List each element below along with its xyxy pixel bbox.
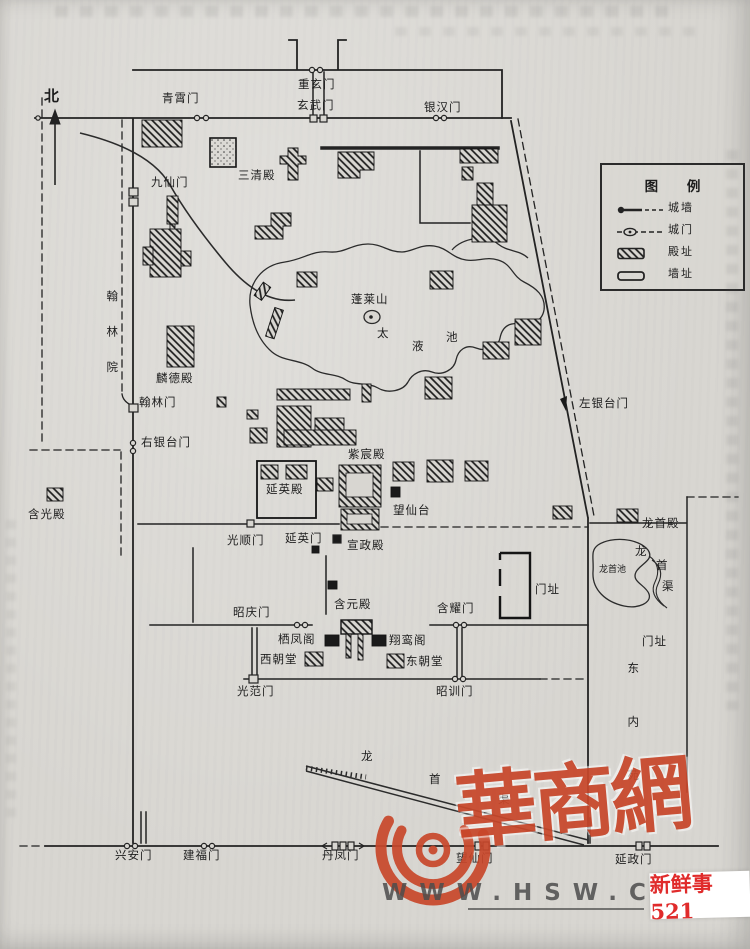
label-hanlin-gate: 翰林门 [139, 396, 177, 409]
label-hanyuan-hall: 含元殿 [334, 598, 372, 611]
jiuxian-gate-mark [129, 188, 138, 196]
watermark-url-text: WWW.HSW.CN [382, 880, 689, 906]
qifeng-pavilion [325, 635, 339, 646]
watermark-brand-text: 華商網 [452, 752, 692, 854]
label-jianfu-gate: 建福门 [183, 849, 221, 862]
ruin-e1 [515, 319, 541, 345]
ruin-n3 [462, 167, 473, 180]
zhaoqing-gate-mark [294, 622, 299, 627]
small-black-2 [328, 581, 337, 589]
qingxiao-gate-mark [203, 115, 208, 120]
label-longshou-pond: 龙首池 [599, 565, 626, 575]
ruin-open-square [210, 138, 236, 167]
youyintai-gate-mark [130, 440, 135, 445]
label-zuoyintai-gate: 左银台门 [579, 397, 629, 410]
legend-row-hall-site: 殿址 [602, 240, 743, 261]
label-danfeng-gate: 丹凤门 [322, 849, 360, 862]
ruin-e4 [553, 506, 572, 519]
watermark-underline [468, 908, 644, 910]
label-hanlin-academy: 翰林院 [105, 290, 118, 397]
guangshun-gate-mark [247, 520, 254, 527]
cluster-bar [277, 389, 350, 400]
gates-layer [36, 67, 650, 850]
ruin-m1 [297, 272, 317, 287]
jiuxian-gate-mark [129, 198, 138, 206]
label-xiangluan-pavilion: 翔鸾阁 [389, 634, 427, 647]
west-complex-main [150, 229, 181, 277]
xichaotang-footprint [305, 652, 323, 666]
zuoyintai-gate-mark [560, 396, 567, 411]
ruin-c2 [427, 460, 453, 482]
label-zichen-hall: 紫宸殿 [348, 448, 386, 461]
label-taiye-ye: 液 [412, 340, 425, 353]
zichen-courtyard [346, 473, 373, 497]
cluster-low [284, 430, 356, 445]
west-complex-wing2 [181, 251, 191, 266]
small-w2 [247, 410, 258, 419]
label-linde-hall: 麟德殿 [156, 372, 194, 385]
label-yinhan-gate: 银汉门 [424, 101, 462, 114]
hall-site-symbol [616, 245, 668, 257]
xuanwu-gate-mark [310, 115, 317, 122]
lake-south-bar [362, 384, 371, 402]
youyintai-gate-mark [130, 448, 135, 453]
chongxuan-gate-mark [309, 67, 314, 72]
label-guangshun-gate: 光顺门 [227, 534, 265, 547]
yinhan-gate-mark [433, 115, 438, 120]
label-xuanzheng-hall: 宣政殿 [347, 539, 385, 552]
legend-box: 图 例 城墙 城门 殿址 墙址 [600, 163, 745, 291]
yanying-tab [317, 478, 333, 491]
ruin-n1 [338, 152, 374, 178]
yanying-gate-mark [333, 535, 341, 543]
xiangluan-pavilion [372, 635, 386, 646]
legend-row-wall: 城墙 [602, 196, 743, 217]
xuanzheng-inner [347, 514, 372, 524]
sanqing-hall-footprint [280, 148, 306, 180]
zhaoxun-gate-mark [460, 676, 465, 681]
label-yanying-gate: 延英门 [285, 532, 323, 545]
ruin-c3 [465, 461, 488, 481]
chongxuan-gate-mark [317, 67, 322, 72]
lake-nw-bar [254, 282, 271, 300]
label-canal-long: 龙 [361, 750, 374, 763]
watermark-badge: 新鲜事521 [649, 871, 750, 920]
label-zhaoxun-gate: 昭训门 [436, 685, 474, 698]
label-penglai-hill: 蓬莱山 [351, 293, 389, 306]
ruin-mid-step [255, 213, 291, 239]
dongchaotang-footprint [387, 654, 404, 668]
hanguang-hall-footprint [47, 488, 63, 501]
label-longshou-canal-shou: 首 [656, 559, 669, 572]
corner-mark [36, 116, 40, 120]
lake-west-bridge [266, 307, 284, 338]
label-longshou-hall: 龙首殿 [642, 517, 680, 530]
ruin-n2 [460, 149, 498, 163]
label-jiuxian-gate: 九仙门 [151, 176, 189, 189]
scanned-page: 北 青霄门 重玄门 玄武门 银汉门 九仙门 三清殿 翰林院 麟德殿 翰林门 右银… [0, 0, 750, 949]
ruin-c1 [393, 462, 414, 481]
label-longshou-canal-qu: 渠 [662, 580, 675, 593]
label-longshou-canal-long: 龙 [635, 545, 648, 558]
legend-row-wall-site: 墙址 [602, 262, 743, 283]
city-wall-symbol [616, 201, 668, 213]
wangxiantai-platform [391, 487, 400, 497]
legend-title: 图 例 [602, 175, 743, 195]
ruin-nw-hall [142, 120, 182, 147]
legend-label: 城门 [668, 221, 694, 237]
hanyuan-hall-footprint [341, 620, 372, 634]
zhaoxun-gate-mark [452, 676, 457, 681]
penglai-island-dot [369, 315, 373, 319]
small-w1 [217, 397, 226, 407]
hanlin-gate-mark [129, 404, 138, 412]
label-west-court-hall: 西朝堂 [260, 653, 298, 666]
label-gate-site-east: 门址 [535, 583, 560, 596]
longshou-hall-footprint [617, 509, 638, 522]
city-gate-symbol [616, 223, 668, 235]
north-arrow [50, 110, 60, 185]
ruin-ne-upper [477, 183, 493, 205]
taiye-lake-outline [250, 244, 544, 391]
xuanwu-gate-mark [320, 115, 327, 122]
yanying-sq1 [261, 465, 278, 479]
wall-site-symbol [616, 267, 668, 279]
cluster-sq [250, 428, 267, 443]
label-chongxuan-gate: 重玄门 [298, 78, 336, 91]
ruin-ne-lower [472, 205, 507, 242]
label-wangxian-terrace: 望仙台 [393, 504, 431, 517]
label-qifeng-pavilion: 栖凤阁 [278, 633, 316, 646]
gate-site-outline [500, 553, 530, 618]
longweidao-left [346, 634, 351, 658]
longweidao-right [358, 634, 363, 660]
label-gate-site-south: 门址 [642, 635, 667, 648]
hanyao-gate-mark [461, 622, 466, 627]
label-taiye-chi: 池 [446, 331, 459, 344]
jiuxian-road [80, 133, 295, 300]
label-qingxiao-gate: 青霄门 [162, 92, 200, 105]
qingxiao-gate-mark [194, 115, 199, 120]
hanyao-gate-mark [453, 622, 458, 627]
ruin-e2 [483, 342, 509, 359]
label-hanguang-hall: 含光殿 [28, 508, 66, 521]
label-sanqing-hall: 三清殿 [238, 169, 276, 182]
zhaoqing-gate-mark [302, 622, 307, 627]
label-zhaoqing-gate: 昭庆门 [233, 606, 271, 619]
label-yanying-hall: 延英殿 [266, 483, 304, 496]
legend-label: 墙址 [668, 265, 694, 281]
yinhan-gate-mark [441, 115, 446, 120]
label-canal-shou: 首 [429, 773, 442, 786]
ruin-m2 [430, 271, 453, 289]
watermark-badge-text: 新鲜事521 [649, 866, 750, 924]
ruin-e3 [425, 377, 452, 399]
east-slant-wall [511, 121, 588, 843]
yanying-sq2 [286, 465, 307, 479]
label-xuanwu-gate: 玄武门 [297, 99, 335, 112]
label-hanyao-gate: 含耀门 [437, 602, 475, 615]
label-xingan-gate: 兴安门 [115, 849, 153, 862]
legend-label: 殿址 [668, 243, 694, 259]
label-east-court-hall: 东朝堂 [406, 655, 444, 668]
linde-hall-footprint [167, 326, 194, 367]
label-taiye-tai: 太 [377, 327, 390, 340]
label-youyintai-gate: 右银台门 [141, 436, 191, 449]
west-complex-wing1 [143, 247, 153, 265]
label-north: 北 [44, 88, 61, 105]
label-guangfan-gate: 光范门 [237, 685, 275, 698]
canal-hatch-ticks [306, 768, 366, 777]
guangfan-gate-mark [249, 675, 258, 683]
jiuxian-gate-building [167, 196, 178, 224]
label-yanzheng-gate: 延政门 [615, 853, 653, 866]
legend-label: 城墙 [668, 199, 694, 215]
legend-row-gate: 城门 [602, 218, 743, 239]
small-black-1 [312, 546, 319, 553]
